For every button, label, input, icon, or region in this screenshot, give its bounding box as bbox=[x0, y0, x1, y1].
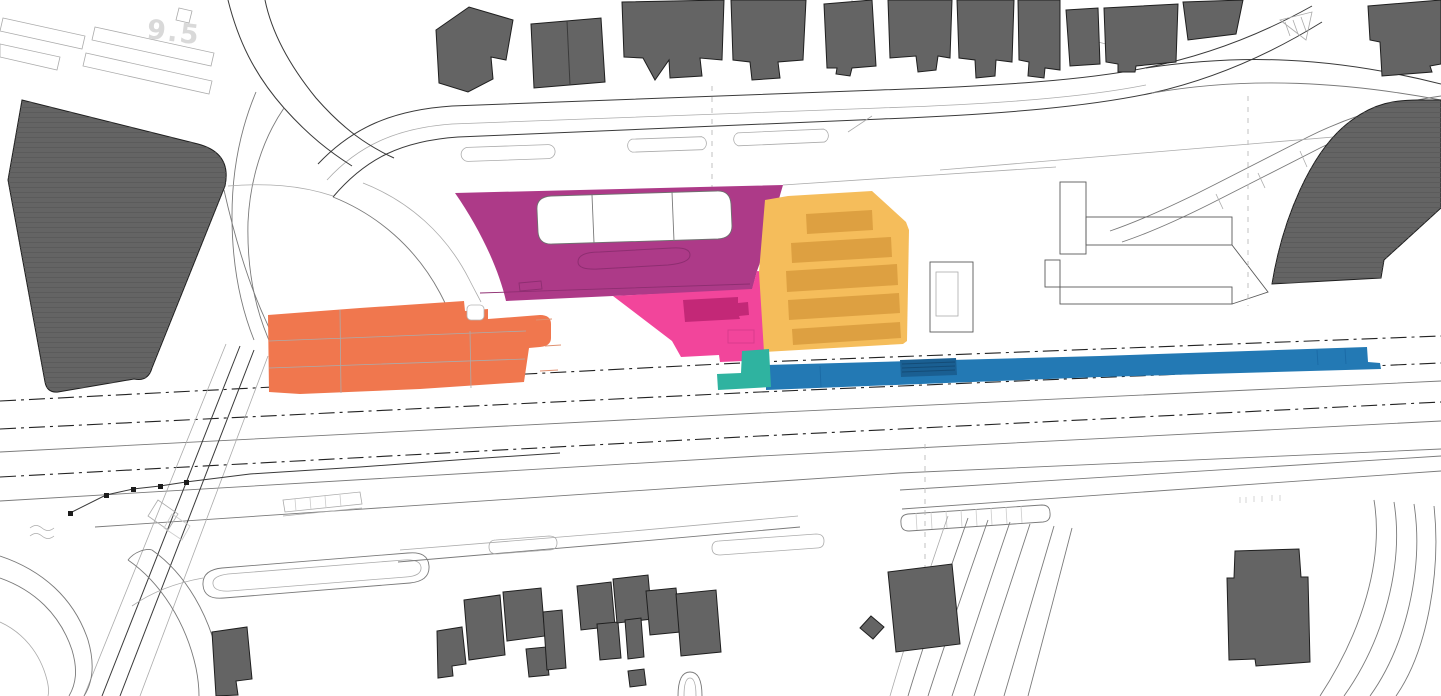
building-bottomright bbox=[1227, 549, 1310, 666]
site-plan-page: 9.5 bbox=[0, 0, 1441, 696]
building bbox=[676, 590, 721, 656]
bottomright-paths bbox=[890, 495, 1436, 696]
zone-amber bbox=[759, 191, 909, 352]
building bbox=[543, 610, 566, 670]
building bbox=[1104, 4, 1178, 72]
building bbox=[628, 669, 646, 687]
elevation-label: 9.5 bbox=[145, 14, 202, 51]
building bbox=[437, 627, 466, 678]
building bbox=[824, 0, 876, 76]
building-topright-corner bbox=[1368, 0, 1441, 76]
building bbox=[1066, 8, 1100, 66]
zone-orange-notch bbox=[467, 305, 484, 320]
building bbox=[646, 588, 680, 635]
building-right-sail bbox=[1272, 100, 1441, 284]
outlined-buildings bbox=[930, 182, 1268, 332]
building bbox=[436, 7, 513, 92]
building bbox=[625, 618, 644, 659]
zone-orange-area bbox=[268, 301, 551, 394]
building bbox=[622, 0, 724, 80]
building bbox=[957, 0, 1014, 78]
zone-blue bbox=[766, 347, 1381, 390]
building-bottomleft bbox=[212, 627, 252, 696]
zone-magenta bbox=[455, 185, 783, 301]
building bbox=[503, 588, 545, 641]
fence-line bbox=[68, 453, 560, 516]
building bbox=[860, 616, 884, 639]
building-row-top bbox=[436, 0, 1243, 92]
building bbox=[597, 622, 621, 660]
building-cluster-bottom bbox=[437, 564, 960, 687]
building bbox=[1018, 0, 1060, 78]
parking-row bbox=[806, 210, 873, 234]
building bbox=[1183, 0, 1243, 40]
building bbox=[888, 0, 952, 72]
building bbox=[464, 595, 505, 660]
site-plan-canvas: 9.5 bbox=[0, 0, 1441, 696]
bottomleft-roads bbox=[0, 492, 362, 696]
zone-orange bbox=[268, 301, 561, 394]
zone-magenta-island bbox=[537, 191, 732, 244]
building bbox=[888, 564, 960, 652]
building-topleft-large bbox=[8, 100, 226, 392]
zone-blue-area bbox=[766, 347, 1381, 390]
masterplan-zones bbox=[268, 185, 1381, 394]
building bbox=[731, 0, 806, 80]
building bbox=[613, 575, 652, 623]
